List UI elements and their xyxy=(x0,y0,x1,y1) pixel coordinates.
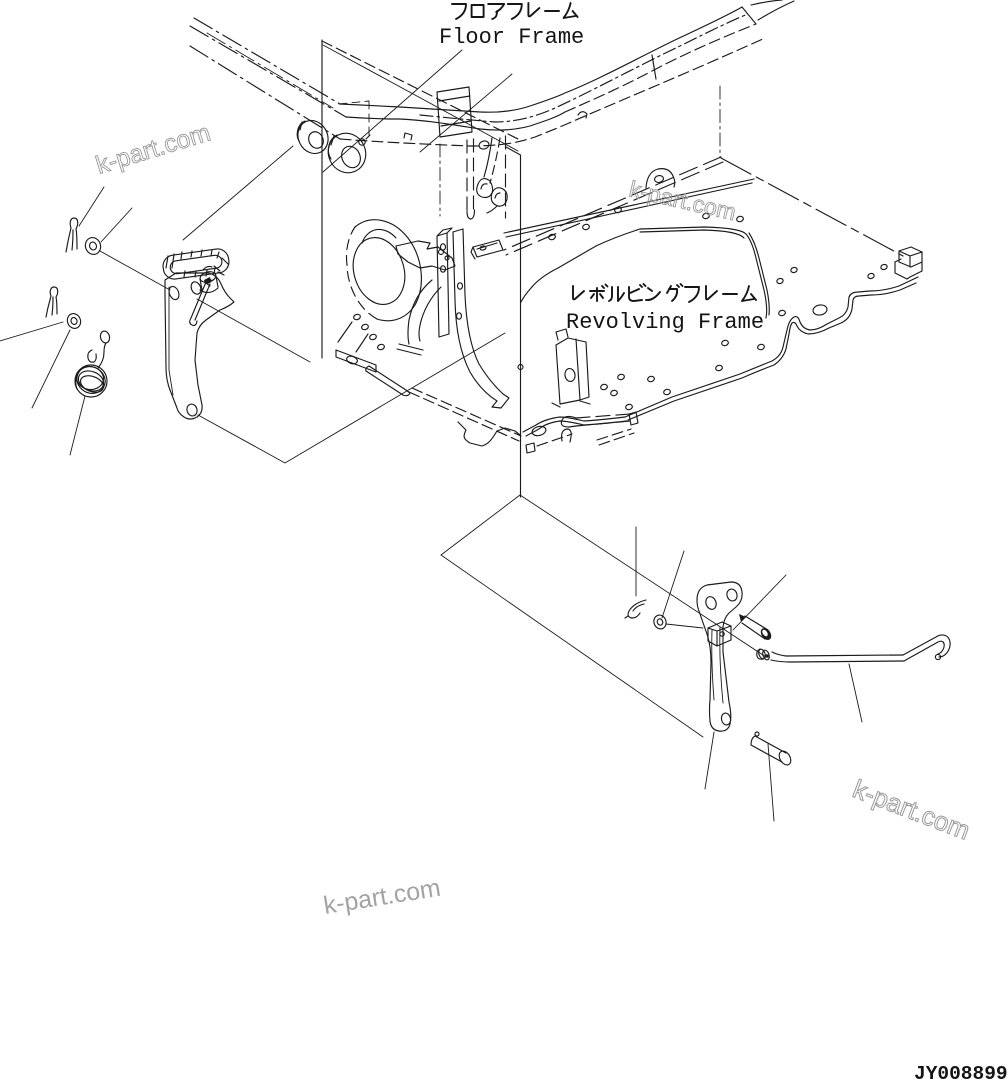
svg-text:Floor Frame: Floor Frame xyxy=(439,25,584,50)
svg-text:JY008899: JY008899 xyxy=(914,1063,1008,1082)
svg-text:Revolving Frame: Revolving Frame xyxy=(566,310,764,335)
